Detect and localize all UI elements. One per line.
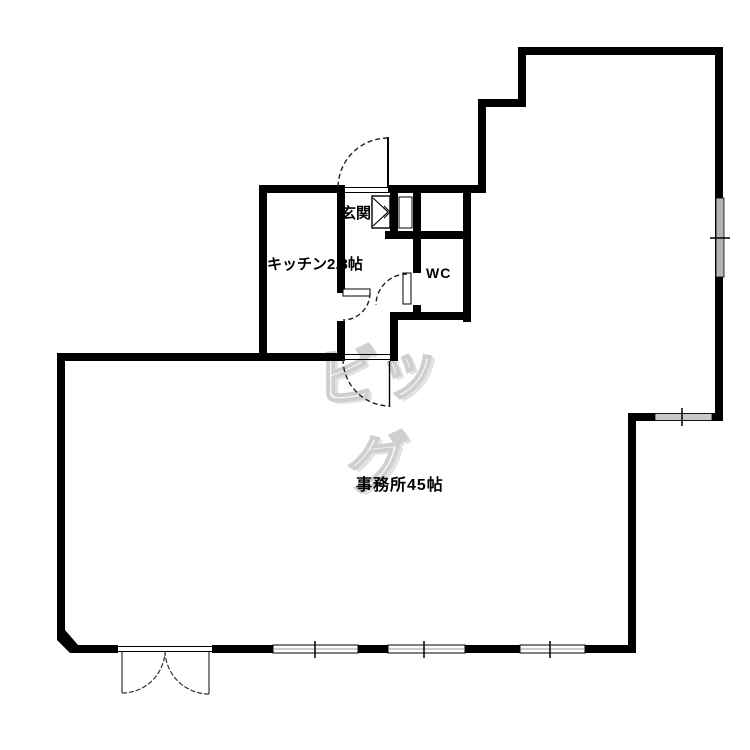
wc-door bbox=[376, 273, 411, 305]
window-east bbox=[710, 198, 730, 277]
room-label-office: 事務所45帖 bbox=[356, 478, 444, 494]
entrance-door bbox=[338, 137, 388, 188]
office-door bbox=[343, 359, 390, 407]
floor-plan-canvas: ビッグ bbox=[0, 0, 750, 750]
storage-box bbox=[399, 197, 412, 228]
window-bottom-2 bbox=[388, 641, 465, 658]
double-entry-door bbox=[122, 651, 209, 694]
floor-plan-drawing bbox=[0, 0, 750, 750]
room-label-wc: WC bbox=[426, 266, 451, 280]
window-bottom-1 bbox=[273, 641, 358, 658]
wc-door-arc bbox=[376, 274, 407, 305]
shoe-cabinet-icon bbox=[372, 196, 390, 228]
walls bbox=[57, 47, 723, 653]
double-door-right-arc bbox=[165, 651, 209, 694]
room-label-genkan: 玄関 bbox=[341, 206, 371, 221]
kitchen-door-arc bbox=[343, 293, 370, 320]
office-door-arc bbox=[343, 359, 390, 406]
double-door-left-arc bbox=[122, 651, 165, 693]
room-label-kitchen: キッチン2.3帖 bbox=[267, 257, 363, 272]
entrance-door-arc bbox=[338, 138, 388, 188]
kitchen-door bbox=[343, 289, 370, 320]
window-bottom-3 bbox=[520, 641, 585, 658]
window-southeast bbox=[655, 408, 712, 426]
